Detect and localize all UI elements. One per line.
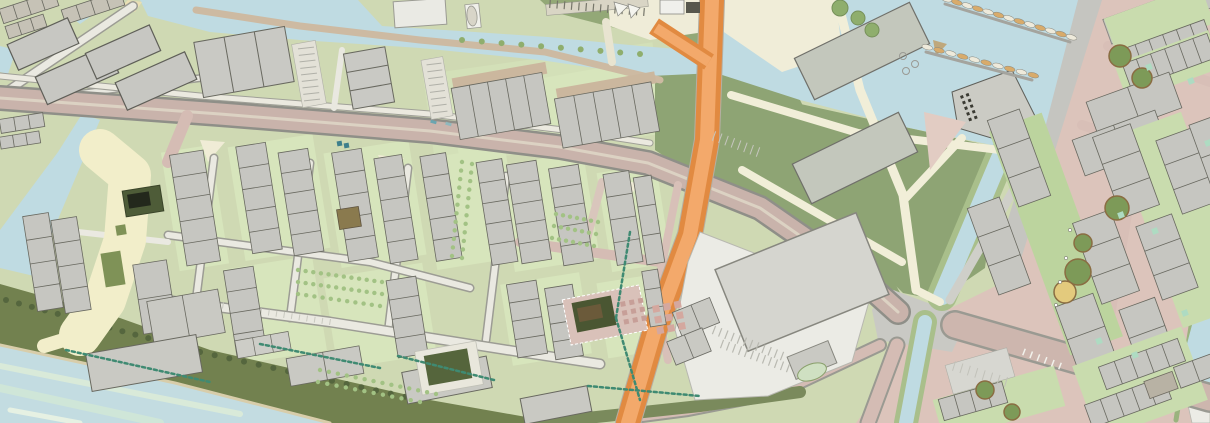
map-canvas[interactable] (0, 0, 1210, 423)
urban-plan-map (0, 0, 1210, 423)
